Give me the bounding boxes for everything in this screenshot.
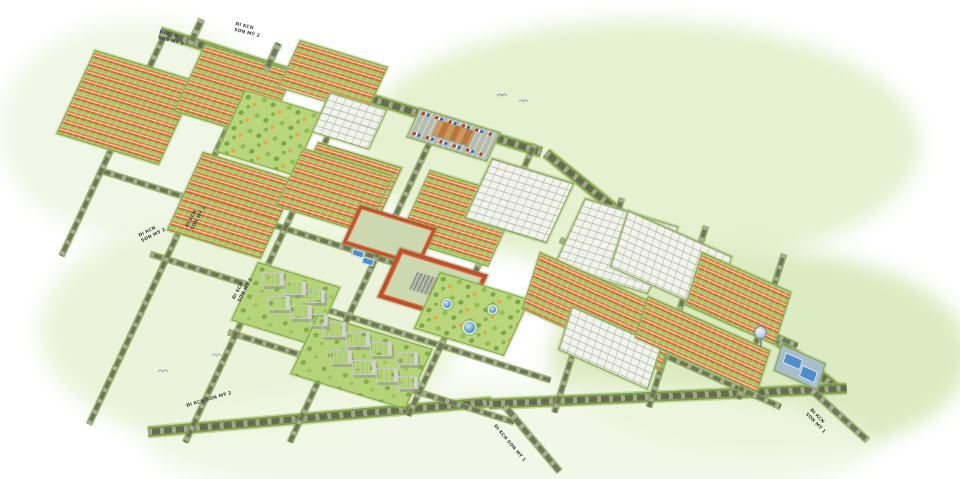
apartment-building <box>330 350 352 364</box>
bird-icon <box>158 368 168 373</box>
bird-icon <box>212 352 221 357</box>
apartment-building <box>268 296 290 310</box>
road-label: ĐI KCN SƠN MỸ 2 <box>233 22 262 40</box>
fountain-pond <box>443 300 451 308</box>
fountain-pond <box>489 306 496 313</box>
apartment-building <box>322 322 346 337</box>
apartment-building <box>262 272 284 286</box>
masterplan-rendering: ĐI KCN SƠN MỸ 2ĐI KCN SƠN MỸ 2ĐI KCN SƠN… <box>0 0 960 479</box>
water-tower <box>754 326 767 339</box>
apartment-building <box>352 360 376 375</box>
apartment-building <box>305 290 325 303</box>
treatment-pool <box>782 352 803 370</box>
apartment-building <box>284 281 306 295</box>
apartment-building <box>398 376 418 389</box>
apartment-building <box>290 305 312 319</box>
apartment-building <box>398 352 418 365</box>
apartment-building <box>370 342 392 356</box>
treatment-pool <box>799 365 818 383</box>
fountain-pond <box>464 322 475 333</box>
apartment-building <box>346 332 370 347</box>
apartment-building <box>376 368 398 382</box>
bird-icon <box>519 98 528 103</box>
bird-icon <box>497 92 507 97</box>
